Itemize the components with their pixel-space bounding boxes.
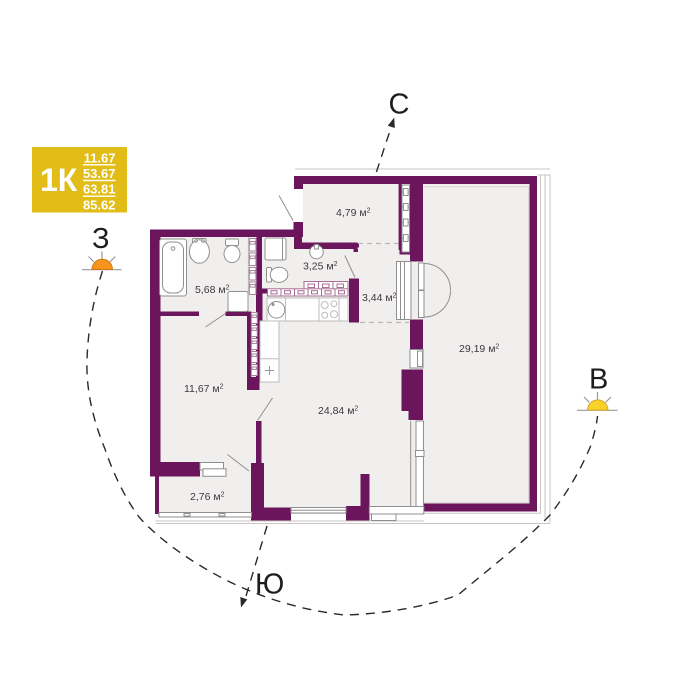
svg-text:29,19 м2: 29,19 м2 — [459, 343, 499, 355]
svg-text:1К: 1К — [40, 162, 78, 198]
svg-text:11.67: 11.67 — [84, 150, 116, 165]
svg-text:3,25 м2: 3,25 м2 — [303, 261, 338, 273]
svg-text:Ю: Ю — [255, 569, 284, 601]
svg-text:3,44 м2: 3,44 м2 — [362, 292, 397, 304]
svg-text:4,79 м2: 4,79 м2 — [336, 207, 371, 219]
svg-text:53.67: 53.67 — [83, 166, 116, 181]
svg-text:5,68 м2: 5,68 м2 — [195, 284, 230, 296]
svg-text:63.81: 63.81 — [83, 182, 116, 197]
svg-text:85.62: 85.62 — [83, 197, 116, 212]
svg-text:С: С — [389, 89, 410, 121]
svg-text:24,84 м2: 24,84 м2 — [318, 405, 358, 417]
svg-text:2,76 м2: 2,76 м2 — [190, 491, 225, 503]
svg-text:З: З — [92, 223, 110, 255]
svg-text:11,67 м2: 11,67 м2 — [184, 383, 224, 395]
svg-text:В: В — [589, 364, 608, 396]
